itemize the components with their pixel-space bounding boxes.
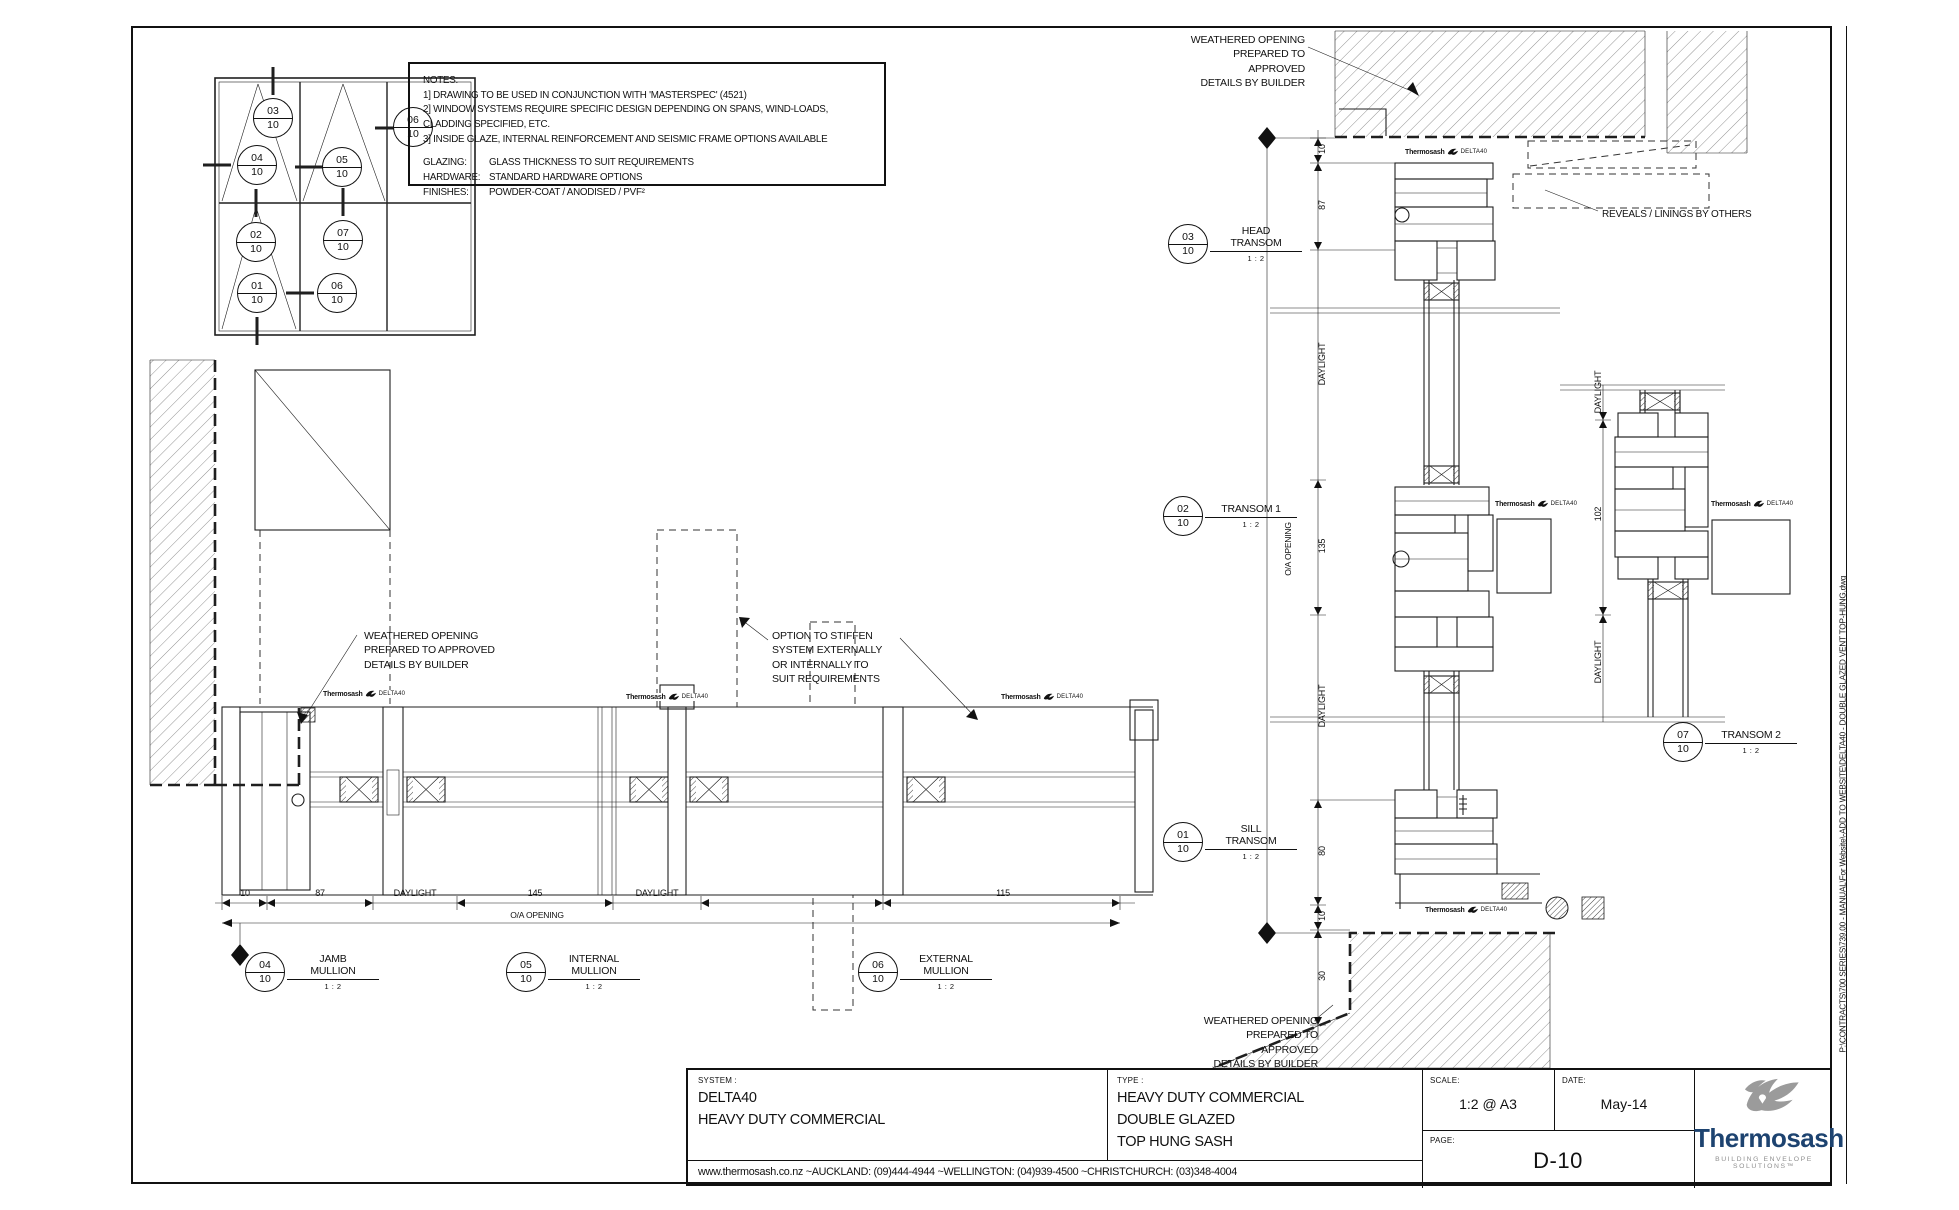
vdim-right-daylight-1: DAYLIGHT <box>1593 357 1603 427</box>
thermosash-bird-icon <box>1537 500 1549 508</box>
extrusion-stamp: Thermosash DELTA40 <box>1424 906 1508 914</box>
detail-callout-jamb-mullion: 0410 JAMB MULLION1 : 2 <box>245 952 379 992</box>
note-line-2: 2] WINDOW SYSTEMS REQUIRE SPECIFIC DESIG… <box>423 103 871 132</box>
thermosash-bird-icon <box>1467 906 1479 914</box>
title-block: SYSTEM : DELTA40 HEAVY DUTY COMMERCIAL T… <box>686 1068 1832 1186</box>
page-label: PAGE: <box>1430 1136 1455 1145</box>
callout-sheet: 10 <box>254 118 292 137</box>
weathered-opening-note-bottom: WEATHERED OPENING PREPARED TO APPROVED D… <box>1198 1014 1318 1072</box>
option-to-stiffen-note: OPTION TO STIFFEN SYSTEM EXTERNALLY OR I… <box>772 629 897 687</box>
scale-value: 1:2 @ A3 <box>1422 1096 1554 1112</box>
type-label: TYPE : <box>1117 1076 1144 1085</box>
website-contacts: www.thermosash.co.nz ~AUCKLAND: (09)444-… <box>698 1166 1237 1178</box>
vdim-daylight-2: DAYLIGHT <box>1317 671 1327 741</box>
extrusion-stamp: Thermosash DELTA40 <box>625 693 709 701</box>
vdim-right-daylight-2: DAYLIGHT <box>1593 627 1603 697</box>
logo-wordmark: Thermosash <box>1694 1123 1834 1154</box>
detail-callout-transom-1: 0210 TRANSOM 11 : 2 <box>1163 496 1297 536</box>
detail-callout-external-mullion: 0610 EXTERNAL MULLION1 : 2 <box>858 952 992 992</box>
hdim-115: 115 <box>973 888 1033 898</box>
finishes-label: FINISHES: <box>423 186 489 201</box>
vdim-80: 80 <box>1317 816 1327 886</box>
thermosash-logo: Thermosash BUILDING ENVELOPE SOLUTIONS™ <box>1694 1070 1834 1188</box>
note-line-3: 3] INSIDE GLAZE, INTERNAL REINFORCEMENT … <box>423 133 871 148</box>
elevation-callout-02: 02 10 <box>236 222 276 262</box>
notes-title: NOTES: <box>423 74 871 89</box>
hdim-daylight-1: DAYLIGHT <box>385 888 445 898</box>
date-label: DATE: <box>1562 1076 1586 1085</box>
elevation-callout-05: 05 10 <box>322 147 362 187</box>
thermosash-logo-bird-icon <box>1719 1072 1809 1124</box>
extrusion-stamp: Thermosash DELTA40 <box>1494 500 1578 508</box>
elevation-callout-04: 04 10 <box>237 145 277 185</box>
detail-callout-sill-transom: 0110 SILL TRANSOM1 : 2 <box>1163 822 1297 862</box>
thermosash-bird-icon <box>1753 500 1765 508</box>
page-value: D-10 <box>1422 1148 1694 1174</box>
callout-number: 03 <box>254 99 292 118</box>
hdim-daylight-2: DAYLIGHT <box>627 888 687 898</box>
glazing-label: GLAZING: <box>423 156 489 171</box>
detail-callout-transom-2: 0710 TRANSOM 21 : 2 <box>1663 722 1797 762</box>
plan-section-drawing <box>135 340 1165 1020</box>
notes-box: NOTES: 1] DRAWING TO BE USED IN CONJUNCT… <box>408 62 886 186</box>
thermosash-bird-icon <box>1447 148 1459 156</box>
oa-opening-horizontal: O/A OPENING <box>497 910 577 920</box>
extrusion-stamp: Thermosash DELTA40 <box>1404 148 1488 156</box>
type-value: HEAVY DUTY COMMERCIAL DOUBLE GLAZED TOP … <box>1117 1088 1304 1153</box>
drawing-sheet: 03 10 04 10 05 10 06 10 02 10 07 10 01 1… <box>0 0 1959 1210</box>
hdim-87: 87 <box>290 888 350 898</box>
detail-callout-head-transom: 0310 HEAD TRANSOM1 : 2 <box>1168 224 1302 264</box>
elevation-callout-03: 03 10 <box>253 98 293 138</box>
date-value: May-14 <box>1554 1096 1694 1112</box>
system-value: DELTA40 HEAVY DUTY COMMERCIAL <box>698 1088 885 1132</box>
hdim-10: 10 <box>215 888 275 898</box>
vdim-135: 135 <box>1317 511 1327 581</box>
vdim-daylight-1: DAYLIGHT <box>1317 329 1327 399</box>
file-path-text: P:\CONTRACTS\700 SERIES\739.00 - MANUAL\… <box>1839 553 1848 1053</box>
elevation-callout-07: 07 10 <box>323 220 363 260</box>
weathered-opening-note-left: WEATHERED OPENING PREPARED TO APPROVED D… <box>364 629 499 672</box>
glazing-value: GLASS THICKNESS TO SUIT REQUIREMENTS <box>489 156 694 171</box>
elevation-callout-06b: 06 10 <box>317 273 357 313</box>
extrusion-stamp: Thermosash DELTA40 <box>1000 693 1084 701</box>
scale-label: SCALE: <box>1430 1076 1460 1085</box>
logo-tagline: BUILDING ENVELOPE SOLUTIONS™ <box>1694 1156 1834 1170</box>
note-line-1: 1] DRAWING TO BE USED IN CONJUNCTION WIT… <box>423 89 871 104</box>
detail-callout-internal-mullion: 0510 INTERNAL MULLION1 : 2 <box>506 952 640 992</box>
extrusion-stamp: Thermosash DELTA40 <box>322 690 406 698</box>
weathered-opening-note-top: WEATHERED OPENING PREPARED TO APPROVED D… <box>1185 33 1305 91</box>
system-label: SYSTEM : <box>698 1076 737 1085</box>
vdim-30: 30 <box>1317 941 1327 1011</box>
vdim-right-102: 102 <box>1593 479 1603 549</box>
extrusion-stamp: Thermosash DELTA40 <box>1710 500 1794 508</box>
hardware-label: HARDWARE: <box>423 171 489 186</box>
elevation-callout-01: 01 10 <box>237 273 277 313</box>
thermosash-bird-icon <box>365 690 377 698</box>
vdim-87: 87 <box>1317 170 1327 240</box>
detail-title: HEAD TRANSOM <box>1220 225 1291 251</box>
finishes-value: POWDER-COAT / ANODISED / PVF² <box>489 186 645 201</box>
thermosash-bird-icon <box>1043 693 1055 701</box>
thermosash-bird-icon <box>668 693 680 701</box>
reveals-linings-note: REVEALS / LININGS BY OTHERS <box>1602 208 1822 222</box>
hdim-145: 145 <box>505 888 565 898</box>
hardware-value: STANDARD HARDWARE OPTIONS <box>489 171 642 186</box>
